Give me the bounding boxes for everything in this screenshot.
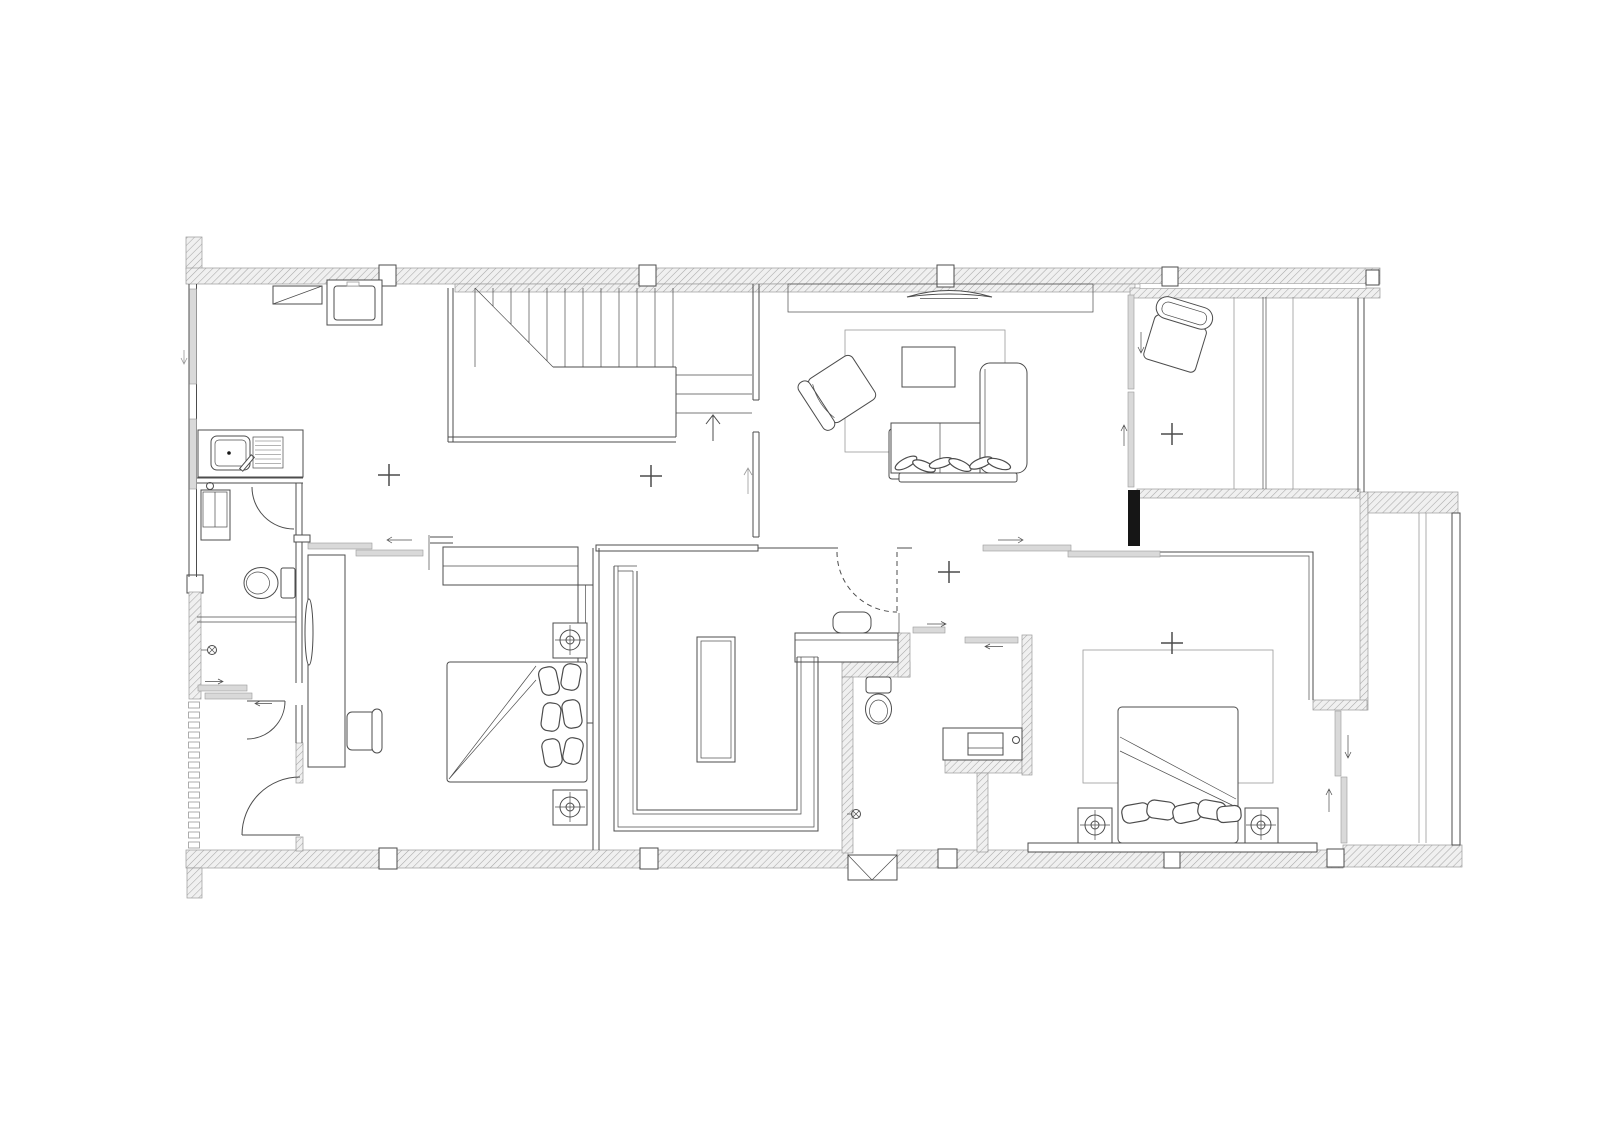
ac-ledge-icon [848,855,897,880]
wall-stub [430,537,453,543]
shower-head-icon [201,646,217,655]
column-icon [186,237,202,269]
partition-line [1234,297,1293,489]
sliding-door-icon [198,679,272,706]
wall-bath [945,760,1022,773]
wall-top-inner [455,284,1135,292]
lounge-chair-icon [1141,294,1216,374]
staircase-icon [448,288,752,494]
center-mark-icon [640,465,662,487]
kitchen-sink-icon [198,430,303,477]
center-mark-icon [378,464,400,486]
lounge-room [1121,294,1293,489]
wall-bedroom2-north [1137,489,1360,498]
window-icon [190,419,197,489]
wall-bottom-left [186,850,848,868]
utility-hall [198,280,382,540]
column-icon [379,848,397,869]
center-mark-icon [1161,423,1183,445]
tall-cabinet-icon [201,490,230,540]
center-marks [378,423,1183,654]
floor-plan-canvas [0,0,1600,1130]
mirror-icon [305,599,313,665]
threshold [197,617,296,622]
partition-line [1263,297,1266,489]
wall-stub [294,535,310,542]
up-arrow-icon [744,468,752,494]
wardrobe-icon [1160,556,1309,700]
wall-lounge-east [1358,298,1364,492]
bedroom-2 [983,537,1351,852]
wall-end-cap [1366,270,1379,285]
toilet-icon [244,568,295,599]
wall-left [189,592,201,699]
bath-north-cabinet [795,633,898,662]
washing-machine-icon [327,280,382,325]
vanity-basin-icon [943,728,1022,760]
sliding-door-icon [1326,711,1351,843]
column-icon [187,868,202,898]
wall-wc-east [296,483,302,743]
bedroom-1 [305,535,593,825]
bed-platform [1028,843,1317,852]
column-icon [187,575,203,593]
door-swing-icon [247,701,285,739]
wall-hall-divider [753,284,759,537]
bed-icon [447,662,587,782]
wall-closet-north [596,545,758,551]
center-mark-icon [1161,632,1183,654]
desk-icon [308,555,345,767]
wall-bath [1022,635,1032,775]
knob-icon [207,483,214,490]
nightstand-lamp-icon [553,790,587,825]
island-dresser-icon [697,637,735,762]
nightstand-lamp-icon [553,623,587,658]
shoe-cabinet-icon [273,286,322,304]
wall-closet-east [1360,492,1368,710]
nightstand-lamp-icon [1245,808,1278,843]
sliding-door-icon [1121,295,1144,487]
sliding-door-icon [913,622,1018,650]
up-arrow-icon [706,415,720,441]
column-dark-icon [1128,490,1140,546]
open-direction-arrow-icon [181,350,187,364]
living-area [788,284,1093,482]
door-swing-icon [242,777,300,835]
wardrobe-icon [1160,552,1313,700]
wall-bath [977,773,988,852]
column-icon [938,849,957,868]
exterior-walls [186,237,1462,898]
wall-bath [842,677,853,853]
door-swing-icon [252,487,294,529]
wall-right-outer [1452,513,1460,845]
wall-wc [296,837,303,851]
bed-icon [1118,707,1242,843]
sofa-base [899,473,1017,482]
coffee-table-icon [902,347,955,387]
walk-in-closet [614,552,897,831]
nightstand-lamp-icon [1078,808,1112,843]
railing-icon [1419,513,1426,843]
window-icon [190,289,197,384]
center-mark-icon [938,561,960,583]
drain-icon [227,451,231,455]
column-icon [639,265,656,286]
wall-terrace-top [1368,492,1458,513]
column-icon [1327,849,1344,867]
stool-icon [833,612,871,633]
wall-closet-south [1313,700,1367,710]
wall-bath [898,633,910,677]
chair-icon [347,709,382,753]
wall-bottom-right [1343,845,1462,867]
stair-break-line [475,288,553,367]
louver-vent-icon [189,702,200,848]
toilet-icon [866,677,892,724]
wall-bedroom1-east [593,548,599,850]
wall-bottom-mid [897,850,1343,868]
armchair-icon [796,351,879,432]
column-icon [1164,851,1180,868]
door-swing-icon [837,552,897,613]
column-icon [640,848,658,869]
column-icon [1162,267,1178,286]
